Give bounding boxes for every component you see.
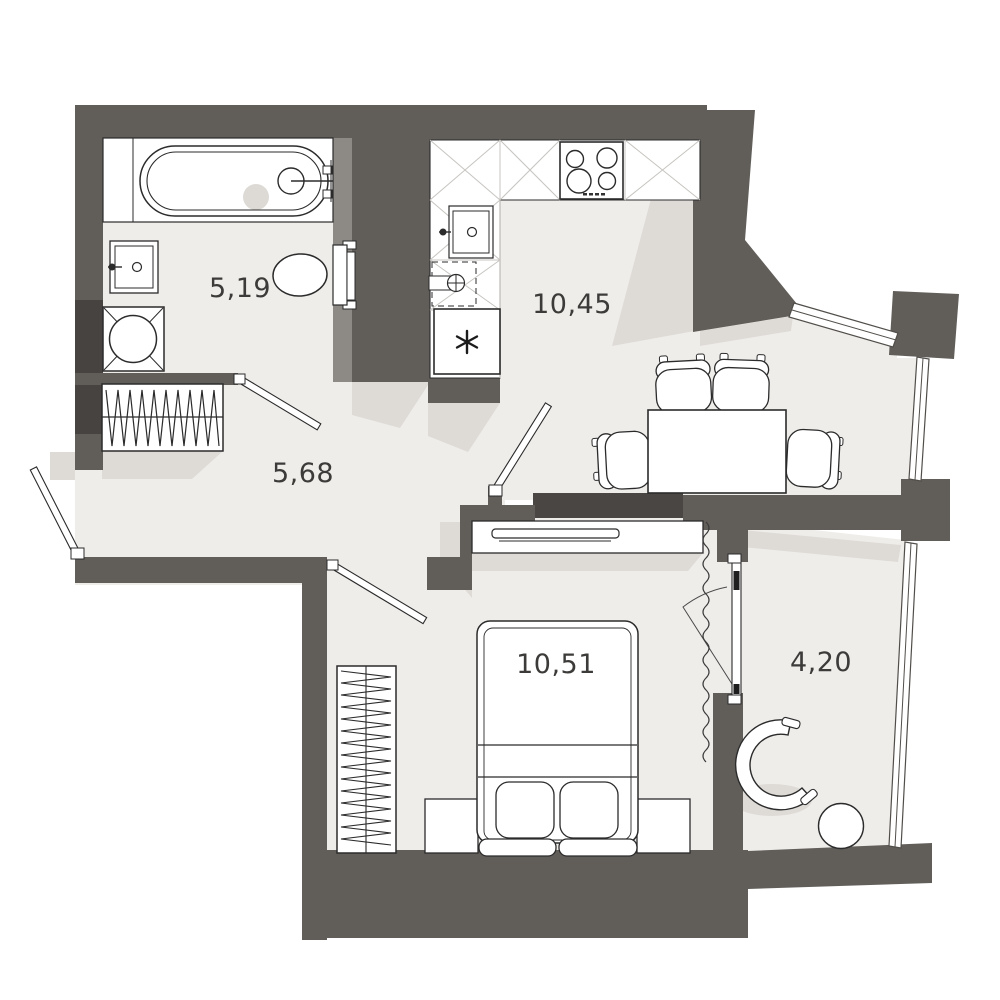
dining-chair [654, 354, 712, 415]
hallway [102, 384, 223, 451]
floor-plan: 5,19 10,45 5,68 10,51 4,20 [0, 0, 1000, 1000]
washing-machine [103, 307, 164, 371]
bathtub-drain-shadow [243, 184, 269, 210]
refrigerator [434, 309, 500, 374]
dining-chair [712, 353, 770, 413]
nightstand-right [637, 799, 690, 853]
floor-plan-drawing: 5,19 10,45 5,68 10,51 4,20 [0, 0, 1000, 1000]
door-cap [728, 695, 741, 704]
wall-left-dark-segment [75, 300, 103, 434]
room-label-hallway: 5,68 [272, 458, 334, 489]
door-cap [489, 485, 502, 496]
wall-kitchen-right [693, 110, 797, 332]
wall-dining-balcony-divider [683, 495, 905, 530]
room-label-bathroom: 5,19 [209, 273, 271, 304]
pillow [560, 782, 618, 838]
wall-pier-east [901, 479, 950, 541]
stove [560, 142, 623, 199]
door-cap [327, 560, 338, 570]
entrance-door[interactable] [30, 467, 80, 556]
headboard-cushion [559, 839, 637, 856]
wall-bath-kitchen-divider [352, 105, 430, 382]
room-label-kitchen: 10,45 [532, 289, 612, 320]
wall-tv-west-leg [460, 505, 472, 557]
toilet-cistern [333, 245, 347, 305]
wall-partition-tv [533, 493, 683, 518]
nightstand-left [425, 799, 478, 853]
room-label-balcony: 4,20 [790, 647, 852, 678]
pillow [496, 782, 554, 838]
dining-table [648, 410, 786, 493]
wall-bathroom-bottom [75, 373, 238, 385]
door-cap [728, 554, 741, 563]
tv [492, 529, 619, 538]
bedroom-wardrobe [337, 666, 396, 853]
headboard-cushion [479, 839, 556, 856]
hallway-wardrobe [102, 384, 223, 451]
room-label-bedroom: 10,51 [516, 649, 596, 680]
dining-chair [786, 429, 844, 490]
shadow-entrance [50, 452, 75, 480]
wall-balcony-slab [748, 843, 932, 889]
door-cap [234, 374, 245, 384]
wall-pier-northeast [889, 291, 959, 359]
shadow-console-bottom [455, 553, 703, 571]
bathroom-sink [108, 241, 158, 293]
wall-bedroom-bottom [302, 850, 748, 938]
door-cap [71, 548, 84, 559]
dining-chair [592, 431, 652, 491]
side-table [819, 804, 864, 849]
wall-bedroom-door-east [427, 557, 472, 590]
wall-hallway-bottom [75, 557, 327, 583]
tv-console [472, 521, 703, 553]
